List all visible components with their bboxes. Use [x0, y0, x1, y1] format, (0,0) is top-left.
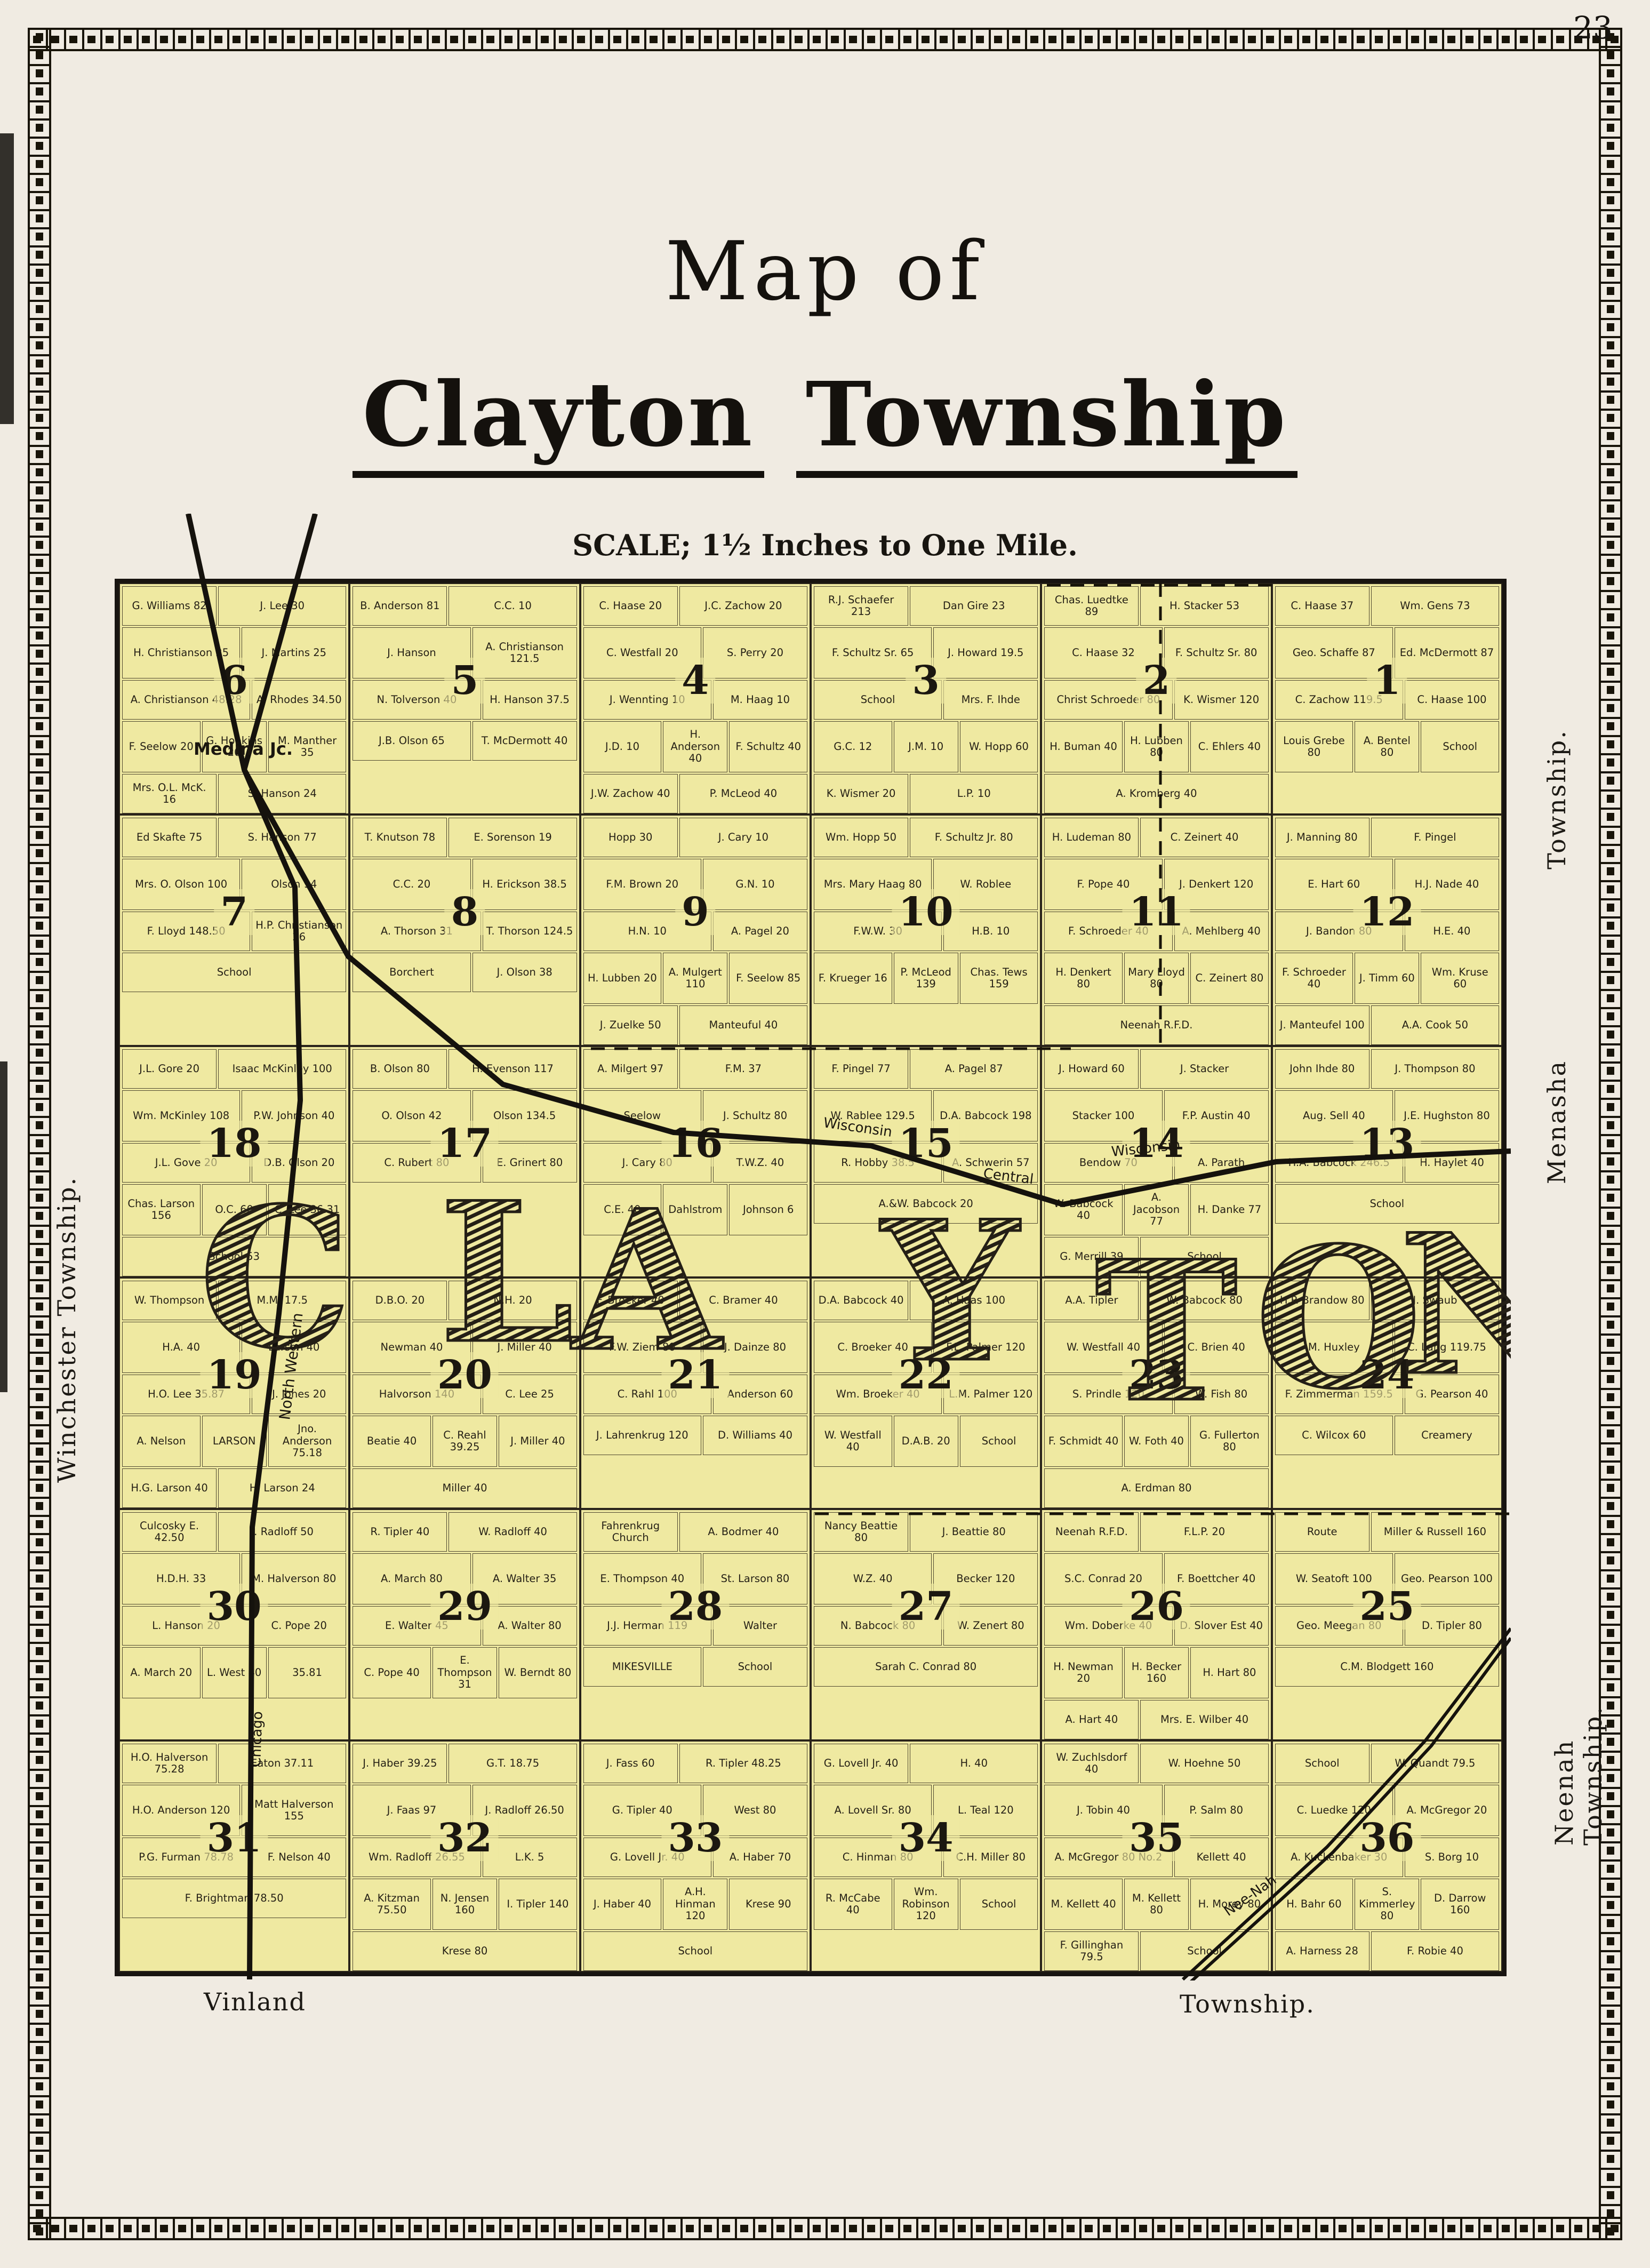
map-section: 15 F. Pingel 77 A. Pagel 87 W. Rablee 12… — [811, 1046, 1041, 1277]
map-section: 29 R. Tipler 40 W. Radloff 40 A. March 8… — [349, 1509, 580, 1740]
parcel-label: H. Erickson 38.5 — [472, 859, 577, 910]
parcel-label: G.N. 10 — [703, 859, 807, 910]
parcel-label: J. Olson 38 — [472, 953, 577, 992]
parcel-label: D. Tipler 80 — [1405, 1606, 1499, 1646]
parcel-label: W. Thompson — [122, 1281, 217, 1320]
parcel-label: M. Kellett 40 — [1044, 1879, 1123, 1930]
parcel-label: F.M. Brown 20 — [583, 859, 701, 910]
parcel-label: J. Denkert 120 — [1164, 859, 1269, 910]
parcel-label: Larson 40 — [242, 1322, 346, 1373]
parcel-label: C. Reahl 39.25 — [432, 1416, 497, 1467]
map-section: 12 J. Manning 80 F. Pingel E. Hart 60 H.… — [1272, 814, 1502, 1046]
section-parcels: B. Olson 80 H. Evenson 117 O. Olson 42 O… — [353, 1049, 576, 1274]
parcel-label: H.A. 40 — [122, 1322, 240, 1373]
parcel-label: J. Beattie 80 — [910, 1512, 1038, 1552]
section-parcels: Chas. Luedtke 89 H. Stacker 53 C. Haase … — [1044, 586, 1268, 811]
parcel-label: S.C. Conrad 20 — [1044, 1553, 1162, 1604]
parcel-label: Becker 120 — [933, 1553, 1038, 1604]
section-parcels: R. Tipler 40 W. Radloff 40 A. March 80 A… — [353, 1512, 576, 1737]
parcel-label: Dan Gire 23 — [910, 586, 1038, 626]
parcel-label: A. Jacobson 77 — [1124, 1184, 1189, 1235]
section-parcels: A.A. Tipler W. Babcock 80 W. Westfall 40… — [1044, 1281, 1268, 1506]
parcel-label: H. 40 — [910, 1744, 1038, 1783]
parcel-label: Borchert — [353, 953, 470, 992]
map-section: 25 Route Miller & Russell 160 W. Seatoft… — [1272, 1509, 1502, 1740]
parcel-label: J. Bandon 80 — [1275, 912, 1403, 951]
parcel-label: J. Hanson — [353, 627, 470, 678]
parcel-label: C. Hinman 80 — [814, 1838, 942, 1877]
parcel-label: Mrs. O.L. McK. 16 — [122, 774, 217, 813]
parcel-label: J. Miller 40 — [499, 1416, 577, 1467]
parcel-label: Aug. Sell 40 — [1275, 1090, 1393, 1141]
parcel-label: Matt Halverson 155 — [242, 1785, 346, 1836]
edge-label-menasha: Menasha — [1542, 1035, 1571, 1184]
section-parcels: C. Haase 20 J.C. Zachow 20 C. Westfall 2… — [583, 586, 807, 811]
parcel-label: F.W.W. 30 — [814, 912, 942, 951]
parcel-label: F. Schultz Sr. 65 — [814, 627, 932, 678]
map-section: 27 Nancy Beattie 80 J. Beattie 80 W.Z. 4… — [811, 1509, 1041, 1740]
parcel-label: A. Christianson 48.28 — [122, 680, 250, 720]
parcel-label: A. McGregor 20 — [1395, 1785, 1499, 1836]
parcel-label: W. Quandt 79.5 — [1371, 1744, 1499, 1783]
parcel-label: C.H. Miller 80 — [943, 1838, 1038, 1877]
map-title-line1: Map of — [0, 224, 1650, 318]
parcel-label: Miller & Russell 160 — [1371, 1512, 1499, 1552]
parcel-label: F. Seelow 20 — [122, 721, 201, 772]
parcel-label: W. Westfall 40 — [814, 1416, 892, 1467]
parcel-label: B. Anderson 81 — [353, 586, 447, 626]
parcel-label: M. Haag 10 — [713, 680, 807, 720]
parcel-label: D.A. Babcock 40 — [814, 1281, 908, 1320]
parcel-label: C. Bramer 40 — [679, 1281, 807, 1320]
parcel-label: G. Lovell Jr. 40 — [583, 1838, 711, 1877]
parcel-label: Walter — [713, 1606, 807, 1646]
parcel-label: Louis Grebe 80 — [1275, 721, 1353, 772]
parcel-label: Bendow 70 — [1044, 1143, 1172, 1183]
parcel-label: Mrs. O. Olson 100 — [122, 859, 240, 910]
map-section: 20 D.B.O. 20 N.H. 20 Newman 40 J. Miller… — [349, 1277, 580, 1509]
map-section: 1 C. Haase 37 Wm. Gens 73 Geo. Schaffe 8… — [1272, 583, 1502, 814]
parcel-label: D.B. Olson 20 — [252, 1143, 346, 1183]
parcel-label: Ed. McDermott 87 — [1395, 627, 1499, 678]
parcel-label: O.C. 60 — [202, 1184, 267, 1235]
parcel-label: J. Timm 60 — [1355, 953, 1419, 1004]
parcel-label: J. Lee 30 — [218, 586, 346, 626]
parcel-label: C.E. 40 — [583, 1184, 662, 1235]
parcel-label: Isaac McKinley 100 — [218, 1049, 346, 1089]
parcel-label: F. Schultz Jr. 80 — [910, 818, 1038, 857]
parcel-label: Geo. Meegan 80 — [1275, 1606, 1403, 1646]
parcel-label: N. Babcock 80 — [814, 1606, 942, 1646]
parcel-label: L. West 40 — [202, 1647, 267, 1698]
parcel-label: H. Lubben 80 — [1124, 721, 1189, 772]
parcel-label: Chas. Larson 156 — [122, 1184, 201, 1235]
parcel-label: J. Stacker — [1140, 1049, 1268, 1089]
parcel-label: M. Halverson 80 — [242, 1553, 346, 1604]
border-frame-top — [28, 28, 1622, 51]
parcel-label: G. Hopkins 20 — [202, 721, 267, 772]
parcel-label: H.P. Brandow 80 — [1275, 1281, 1369, 1320]
parcel-label: H.O. Lee 35.87 — [122, 1375, 250, 1414]
parcel-label: D. Williams 40 — [703, 1416, 807, 1455]
parcel-label: J. Fass 60 — [583, 1744, 678, 1783]
parcel-label: Olson 94 — [242, 859, 346, 910]
parcel-label: J. Radloff 26.50 — [472, 1785, 577, 1836]
parcel-label: Wm. Kruse 60 — [1421, 953, 1499, 1004]
parcel-label: F. Schroeder 40 — [1044, 912, 1172, 951]
map-section: 36 School W. Quandt 79.5 C. Luedke 120 A… — [1272, 1740, 1502, 1972]
parcel-label: A. Parath — [1174, 1143, 1269, 1183]
parcel-label: J. Schultz 80 — [703, 1090, 807, 1141]
parcel-label: Seelow — [583, 1090, 701, 1141]
section-parcels: John Ihde 80 J. Thompson 80 Aug. Sell 40… — [1275, 1049, 1499, 1274]
parcel-label: D.B.O. 20 — [353, 1281, 447, 1320]
parcel-label: Sarah C. Conrad 80 — [814, 1647, 1038, 1687]
parcel-label: F. Pingel — [1371, 818, 1499, 857]
parcel-label: A. March 80 — [353, 1553, 470, 1604]
parcel-label: D.A.B. 20 — [894, 1416, 958, 1467]
parcel-label: A. Nelson — [122, 1416, 201, 1467]
section-parcels: W. Zuchlsdorf 40 W. Hoehne 50 J. Tobin 4… — [1044, 1744, 1268, 1969]
parcel-label: L.K. 5 — [483, 1838, 577, 1877]
parcel-label: Nancy Beattie 80 — [814, 1512, 908, 1552]
parcel-label: O. Olson 42 — [353, 1090, 470, 1141]
parcel-label: H.O. Anderson 120 — [122, 1785, 240, 1836]
parcel-label: Wm. Hopp 50 — [814, 818, 908, 857]
section-parcels: T. Knutson 78 E. Sorenson 19 C.C. 20 H. … — [353, 818, 576, 1043]
parcel-label: C.M. Blodgett 160 — [1275, 1647, 1499, 1687]
parcel-label: A. Haas 100 — [910, 1281, 1038, 1320]
parcel-label: L.M. Palmer 120 — [943, 1375, 1038, 1414]
parcel-label: T. Knutson 78 — [353, 818, 447, 857]
parcel-label: A. Milgert 97 — [583, 1049, 678, 1089]
parcel-label: L.P. 10 — [910, 774, 1038, 813]
section-parcels: J. Fass 60 R. Tipler 48.25 G. Tipler 40 … — [583, 1744, 807, 1969]
map-section: 13 John Ihde 80 J. Thompson 80 Aug. Sell… — [1272, 1046, 1502, 1277]
parcel-label: Mrs. F. Ihde — [943, 680, 1038, 720]
parcel-label: L. Hanson 20 — [122, 1606, 250, 1646]
parcel-label: Miller 40 — [353, 1468, 576, 1508]
parcel-label: J. Miller 40 — [472, 1322, 577, 1373]
parcel-label: C. Haase 37 — [1275, 586, 1369, 626]
section-parcels: A. Milgert 97 F.M. 37 Seelow J. Schultz … — [583, 1049, 807, 1274]
parcel-label: F.L.P. 20 — [1140, 1512, 1268, 1552]
parcel-label: F. Schmidt 40 — [1044, 1416, 1123, 1467]
parcel-label: J.M. 10 — [894, 721, 958, 772]
parcel-label: W. Zenert 80 — [943, 1606, 1038, 1646]
parcel-label: A.H. Hinman 120 — [663, 1879, 727, 1930]
parcel-label: F. Seelow 85 — [729, 953, 807, 1004]
parcel-label: J. Jones 20 — [252, 1375, 346, 1414]
parcel-label: L. Teal 120 — [933, 1785, 1038, 1836]
parcel-label: E. Hart 60 — [1275, 859, 1393, 910]
parcel-label: H. Evenson 117 — [448, 1049, 576, 1089]
section-parcels: R.J. Schaefer 213 Dan Gire 23 F. Schultz… — [814, 586, 1038, 811]
parcel-label: G. Fullerton 80 — [1190, 1416, 1269, 1467]
parcel-label: H. Newman 20 — [1044, 1647, 1123, 1698]
parcel-label: E. Thompson 40 — [583, 1553, 701, 1604]
parcel-label: A. Harness 28 — [1275, 1931, 1369, 1971]
parcel-label: John Ihde 80 — [1275, 1049, 1369, 1089]
edge-label-township-bottom: Township. — [1180, 1990, 1315, 2018]
parcel-label: M. Manther 35 — [268, 721, 347, 772]
parcel-label: Wm. Doberke 40 — [1044, 1606, 1172, 1646]
section-parcels: C. Haase 37 Wm. Gens 73 Geo. Schaffe 87 … — [1275, 586, 1499, 811]
parcel-label: Chas. Luedtke 89 — [1044, 586, 1139, 626]
parcel-label: K. Wismer 20 — [814, 774, 908, 813]
parcel-label: F. Broeker 40 — [583, 1281, 678, 1320]
parcel-label: F. Brightman 78.50 — [122, 1879, 346, 1918]
section-parcels: Route Miller & Russell 160 W. Seatoft 10… — [1275, 1512, 1499, 1737]
parcel-label: B. Olson 80 — [353, 1049, 447, 1089]
parcel-label: P.G. Furman 78.78 — [122, 1838, 250, 1877]
parcel-label: Krese 90 — [729, 1879, 807, 1930]
section-parcels: J. Haber 39.25 G.T. 18.75 J. Faas 97 J. … — [353, 1744, 576, 1969]
parcel-label: H. Denkert 80 — [1044, 953, 1123, 1004]
plat-map: 6 G. Williams 82 J. Lee 30 H. Christians… — [115, 579, 1507, 1976]
parcel-label: Kellett 40 — [1174, 1838, 1269, 1877]
parcel-label: C. Rubert 80 — [353, 1143, 480, 1183]
parcel-label: W. Radloff 40 — [448, 1512, 576, 1552]
parcel-label: D.A. Babcock 198 — [933, 1090, 1038, 1141]
parcel-label: Halvorson 140 — [353, 1375, 480, 1414]
parcel-label: Manteuful 40 — [679, 1005, 807, 1045]
parcel-label: M. Kellett 80 — [1124, 1879, 1189, 1930]
map-section: 31 H.O. Halverson 75.28 Eaton 37.11 H.O.… — [119, 1740, 349, 1972]
section-parcels: Fahrenkrug Church A. Bodmer 40 E. Thomps… — [583, 1512, 807, 1737]
parcel-label: H. Hart 80 — [1190, 1647, 1269, 1698]
parcel-label: Stacker 100 — [1044, 1090, 1162, 1141]
section-parcels: F. Pingel 77 A. Pagel 87 W. Rablee 129.5… — [814, 1049, 1038, 1274]
section-parcels: Neenah R.F.D. F.L.P. 20 S.C. Conrad 20 F… — [1044, 1512, 1268, 1737]
parcel-label: W. Fish 80 — [1174, 1375, 1269, 1414]
parcel-label: W. Hoehne 50 — [1140, 1744, 1268, 1783]
map-section: 9 Hopp 30 J. Cary 10 F.M. Brown 20 G.N. … — [580, 814, 811, 1046]
section-parcels: Hopp 30 J. Cary 10 F.M. Brown 20 G.N. 10… — [583, 818, 807, 1043]
parcel-label: N.H. 20 — [448, 1281, 576, 1320]
parcel-label: C. Westfall 20 — [583, 627, 701, 678]
parcel-label: P.W. Johnson 40 — [242, 1090, 346, 1141]
parcel-label: W. Berndt 80 — [499, 1647, 577, 1698]
parcel-label: J. Dainze 80 — [703, 1322, 807, 1373]
parcel-label: G. Tipler 40 — [583, 1785, 701, 1836]
parcel-label: W.Z. 40 — [814, 1553, 932, 1604]
map-section: 17 B. Olson 80 H. Evenson 117 O. Olson 4… — [349, 1046, 580, 1277]
parcel-label: W. Roblee — [933, 859, 1038, 910]
parcel-label: G. Williams 82 — [122, 586, 217, 626]
section-parcels: Culcosky E. 42.50 J. Radloff 50 H.D.H. 3… — [122, 1512, 346, 1737]
parcel-label: J.W. Zachow 40 — [583, 774, 678, 813]
parcel-label: H. Lubben 20 — [583, 953, 662, 1004]
parcel-label: E. Walter 45 — [353, 1606, 480, 1646]
parcel-label: F. Schultz Sr. 80 — [1164, 627, 1269, 678]
parcel-label: Route — [1275, 1512, 1369, 1552]
parcel-label: Ed Skafte 75 — [122, 818, 217, 857]
parcel-label: J. Howard 19.5 — [933, 627, 1038, 678]
parcel-label: A.&W. Babcock 20 — [814, 1184, 1038, 1224]
parcel-label: J. Tobin 40 — [1044, 1785, 1162, 1836]
parcel-label: D. Darrow 160 — [1421, 1879, 1499, 1930]
parcel-label: Mrs. Mary Haag 80 — [814, 859, 932, 910]
parcel-label: R. Tipler 48.25 — [679, 1744, 807, 1783]
map-section: 24 H.P. Brandow 80 J. Swaub M. Huxley C.… — [1272, 1277, 1502, 1509]
parcel-label: C.C. 20 — [353, 859, 470, 910]
section-parcels: J. Howard 60 J. Stacker Stacker 100 F.P.… — [1044, 1049, 1268, 1274]
parcel-label: J.E. Hughston 80 — [1395, 1090, 1499, 1141]
map-section: 33 J. Fass 60 R. Tipler 48.25 G. Tipler … — [580, 1740, 811, 1972]
parcel-label: J.L. Gove 20 — [122, 1143, 250, 1183]
parcel-label: N. Jensen 160 — [432, 1879, 497, 1930]
parcel-label: H. Anderson 40 — [663, 721, 727, 772]
edge-label-township-right-top: Township. — [1542, 709, 1571, 869]
parcel-label: School — [1275, 1744, 1369, 1783]
parcel-label: C. Haase 32 — [1044, 627, 1162, 678]
section-parcels: J.L. Gore 20 Isaac McKinley 100 Wm. McKi… — [122, 1049, 346, 1274]
parcel-label: H. Buman 40 — [1044, 721, 1123, 772]
parcel-label: H. Hanson 37.5 — [483, 680, 577, 720]
parcel-label: W. Westfall 40 — [1044, 1322, 1162, 1373]
map-section: 35 W. Zuchlsdorf 40 W. Hoehne 50 J. Tobi… — [1041, 1740, 1271, 1972]
parcel-label: Johnson 6 — [729, 1184, 807, 1235]
parcel-label: Chas. Tews 159 — [960, 953, 1038, 1004]
parcel-label: C. Zeinert 80 — [1190, 953, 1269, 1004]
map-section: 10 Wm. Hopp 50 F. Schultz Jr. 80 Mrs. Ma… — [811, 814, 1041, 1046]
parcel-label: F.P. Austin 40 — [1164, 1090, 1269, 1141]
parcel-label: A. Walter 80 — [483, 1606, 577, 1646]
parcel-label: H.O. Halverson 75.28 — [122, 1744, 217, 1783]
edge-label-neenah-township: Neenah Township. — [1550, 1600, 1607, 1846]
parcel-label: S. Hanson 24 — [218, 774, 346, 813]
border-frame-right — [1599, 28, 1622, 2240]
parcel-label: A. Thorson 31 — [353, 912, 480, 951]
parcel-label: Geo. Schaffe 87 — [1275, 627, 1393, 678]
edge-label-winchester-township: Winchester Township. — [52, 1141, 81, 1483]
parcel-label: School — [1421, 721, 1499, 772]
parcel-label: C. Wilcox 60 — [1275, 1416, 1393, 1455]
parcel-label: W. Babcock 80 — [1140, 1281, 1268, 1320]
map-section: 16 A. Milgert 97 F.M. 37 Seelow J. Schul… — [580, 1046, 811, 1277]
parcel-label: A. Kuckenbaker 30 — [1275, 1838, 1403, 1877]
parcel-label: J.C. Zachow 20 — [679, 586, 807, 626]
parcel-label: School — [703, 1647, 807, 1687]
parcel-label: Mary Lloyd 80 — [1124, 953, 1189, 1004]
parcel-label: C. Lee 36.31 — [268, 1184, 347, 1235]
parcel-label: P. Salm 80 — [1164, 1785, 1269, 1836]
parcel-label: School — [960, 1879, 1038, 1930]
parcel-label: P. McLeod 139 — [894, 953, 958, 1004]
parcel-label: J. Zuelke 50 — [583, 1005, 678, 1045]
parcel-label: MIKESVILLE — [583, 1647, 701, 1687]
parcel-label: J. Howard 60 — [1044, 1049, 1139, 1089]
parcel-label: School — [122, 953, 346, 992]
parcel-label: M.M. 17.5 — [218, 1281, 346, 1320]
parcel-label: A. Christianson 121.5 — [472, 627, 577, 678]
parcel-label: H. Christianson 25 — [122, 627, 240, 678]
parcel-label: Wm. Robinson 120 — [894, 1879, 958, 1930]
parcel-label: J. Radloff 50 — [218, 1512, 346, 1552]
section-parcels: F. Broeker 40 C. Bramer 40 F.W. Ziem 80 … — [583, 1281, 807, 1506]
map-title-line2: ClaytonTownship — [0, 363, 1650, 478]
parcel-label: C. Brien 40 — [1164, 1322, 1269, 1373]
title-word-clayton: Clayton — [353, 363, 764, 478]
section-parcels: B. Anderson 81 C.C. 10 J. Hanson A. Chri… — [353, 586, 576, 811]
parcel-label: H. Larson 24 — [218, 1468, 346, 1508]
section-parcels: Wm. Hopp 50 F. Schultz Jr. 80 Mrs. Mary … — [814, 818, 1038, 1043]
parcel-label: F. Pingel 77 — [814, 1049, 908, 1089]
parcel-label: H.B. 10 — [943, 912, 1038, 951]
parcel-label: J. Lahrenkrug 120 — [583, 1416, 701, 1455]
parcel-label: A. Erdman 80 — [1044, 1468, 1268, 1508]
parcel-label: F. Schultz 40 — [729, 721, 807, 772]
parcel-label: J. Thompson 80 — [1371, 1049, 1499, 1089]
section-parcels: H.P. Brandow 80 J. Swaub M. Huxley C. La… — [1275, 1281, 1499, 1506]
edge-label-vinland: Vinland — [204, 1987, 306, 2016]
parcel-label: C. Pope 40 — [353, 1647, 431, 1698]
parcel-label: S. Borg 10 — [1405, 1838, 1499, 1877]
parcel-label: W. Foth 40 — [1124, 1416, 1189, 1467]
parcel-label: H.E. 40 — [1405, 912, 1499, 951]
parcel-label: A. Kromberg 40 — [1044, 774, 1268, 813]
section-parcels: W. Thompson M.M. 17.5 H.A. 40 Larson 40 … — [122, 1281, 346, 1506]
parcel-label: G. Pearson 40 — [1405, 1375, 1499, 1414]
map-section: 5 B. Anderson 81 C.C. 10 J. Hanson A. Ch… — [349, 583, 580, 814]
map-section: 22 D.A. Babcock 40 A. Haas 100 C. Broeke… — [811, 1277, 1041, 1509]
map-section: 32 J. Haber 39.25 G.T. 18.75 J. Faas 97 … — [349, 1740, 580, 1972]
map-section: 30 Culcosky E. 42.50 J. Radloff 50 H.D.H… — [119, 1509, 349, 1740]
parcel-label: A. McGregor 80 No.2 — [1044, 1838, 1172, 1877]
section-parcels: G. Williams 82 J. Lee 30 H. Christianson… — [122, 586, 346, 811]
parcel-label: W. Hopp 60 — [960, 721, 1038, 772]
parcel-label: H. Ludeman 80 — [1044, 818, 1139, 857]
parcel-label: Geo. Pearson 100 — [1395, 1553, 1499, 1604]
parcel-label: C. Zachow 119.5 — [1275, 680, 1403, 720]
atlas-page: 23 Map of ClaytonTownship SCALE; 1½ Inch… — [0, 0, 1650, 2268]
parcel-label: J.L. Gore 20 — [122, 1049, 217, 1089]
parcel-label: Beatie 40 — [353, 1416, 431, 1467]
parcel-label: Eaton 37.11 — [218, 1744, 346, 1783]
parcel-label: A. Schwerin 57 — [943, 1143, 1038, 1183]
parcel-label: T. Thorson 124.5 — [483, 912, 577, 951]
parcel-label: F.W. Ziem 80 — [583, 1322, 701, 1373]
map-section: 2 Chas. Luedtke 89 H. Stacker 53 C. Haas… — [1041, 583, 1271, 814]
map-section: 26 Neenah R.F.D. F.L.P. 20 S.C. Conrad 2… — [1041, 1509, 1271, 1740]
section-parcels: D.A. Babcock 40 A. Haas 100 C. Broeker 4… — [814, 1281, 1038, 1506]
parcel-label: W. Zuchlsdorf 40 — [1044, 1744, 1139, 1783]
parcel-label: H.G. Larson 40 — [122, 1468, 217, 1508]
map-section: 8 T. Knutson 78 E. Sorenson 19 C.C. 20 H… — [349, 814, 580, 1046]
parcel-label: A. Lovell Sr. 80 — [814, 1785, 932, 1836]
parcel-label: J. Martins 25 — [242, 627, 346, 678]
parcel-label: LARSON — [202, 1416, 267, 1467]
parcel-label: F. Nelson 40 — [252, 1838, 346, 1877]
parcel-label: Wm. Radloff 26.55 — [353, 1838, 480, 1877]
parcel-label: Creamery — [1395, 1416, 1499, 1455]
parcel-label: Neenah R.F.D. — [1044, 1512, 1139, 1552]
parcel-label: S. Kimmerley 80 — [1355, 1879, 1419, 1930]
parcel-label: G. Merrill 39 — [1044, 1237, 1139, 1276]
parcel-label: F. Robie 40 — [1371, 1931, 1499, 1971]
parcel-label: F. Schroeder 40 — [1275, 953, 1353, 1004]
parcel-label: H. Bahr 60 — [1275, 1879, 1353, 1930]
parcel-label: School — [583, 1931, 807, 1971]
parcel-label: Wm. Broeker 40 — [814, 1375, 942, 1414]
map-section: 23 A.A. Tipler W. Babcock 80 W. Westfall… — [1041, 1277, 1271, 1509]
parcel-label: School — [814, 680, 942, 720]
parcel-label: H. Morey 80 — [1190, 1879, 1269, 1930]
parcel-label: F.M. 37 — [679, 1049, 807, 1089]
parcel-label: F. Gillinghan 79.5 — [1044, 1931, 1139, 1971]
parcel-label: A. Bodmer 40 — [679, 1512, 807, 1552]
